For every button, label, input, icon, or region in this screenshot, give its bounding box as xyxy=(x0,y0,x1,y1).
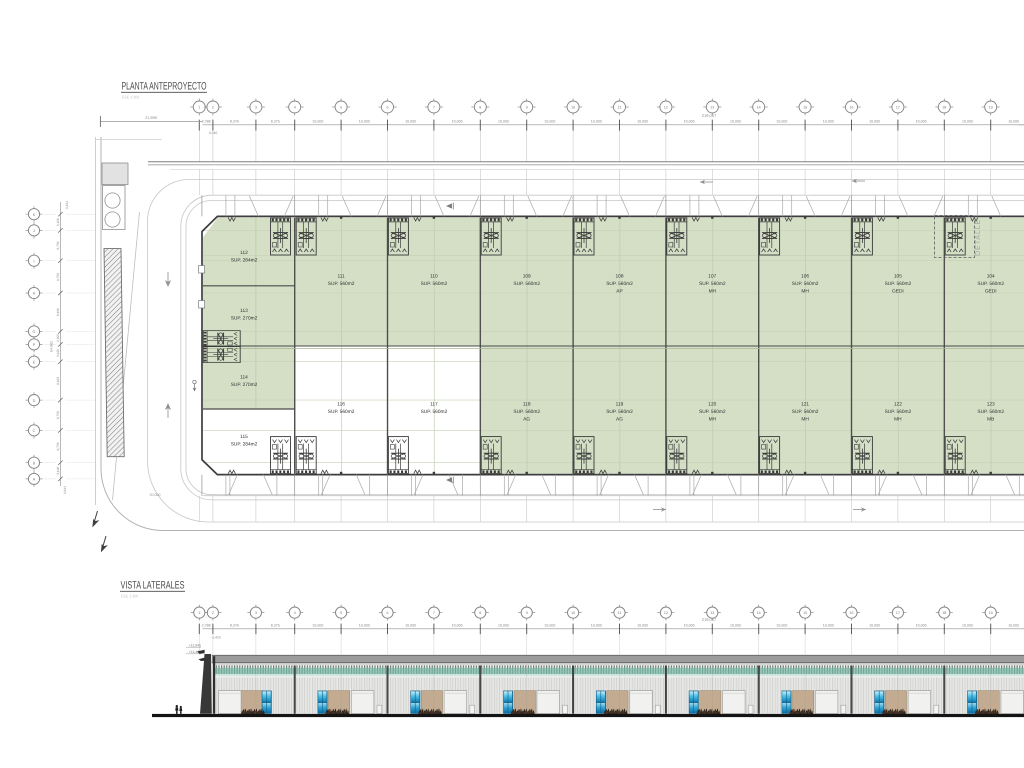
svg-text:219,007: 219,007 xyxy=(702,113,717,118)
svg-text:6: 6 xyxy=(387,611,389,615)
svg-text:10,000: 10,000 xyxy=(776,120,787,124)
svg-text:10,000: 10,000 xyxy=(730,120,741,124)
svg-text:10,000: 10,000 xyxy=(823,120,834,124)
svg-text:10: 10 xyxy=(571,611,575,615)
svg-text:I: I xyxy=(33,259,34,263)
svg-text:6,756: 6,756 xyxy=(56,411,60,419)
svg-text:1: 1 xyxy=(198,611,200,615)
svg-text:10,000: 10,000 xyxy=(544,624,555,628)
svg-text:8: 8 xyxy=(479,611,481,615)
svg-text:10,000: 10,000 xyxy=(1008,624,1019,628)
svg-text:0,624: 0,624 xyxy=(65,201,69,209)
svg-text:113: 113 xyxy=(240,308,248,314)
svg-text:B: B xyxy=(33,461,36,465)
svg-text:105: 105 xyxy=(894,274,902,280)
svg-text:10,000: 10,000 xyxy=(498,624,509,628)
svg-text:119: 119 xyxy=(616,402,624,408)
svg-text:120: 120 xyxy=(708,402,716,408)
svg-text:13: 13 xyxy=(710,611,714,615)
svg-text:SUP. 560m2: SUP. 560m2 xyxy=(699,409,726,415)
svg-text:121: 121 xyxy=(801,402,809,408)
svg-text:PLANTA ANTEPROYECTO: PLANTA ANTEPROYECTO xyxy=(122,81,207,93)
svg-text:54,981: 54,981 xyxy=(50,341,54,352)
svg-text:3: 3 xyxy=(255,611,257,615)
svg-text:6,756: 6,756 xyxy=(56,442,60,450)
svg-text:112: 112 xyxy=(240,250,248,256)
svg-text:MH: MH xyxy=(709,288,717,294)
svg-text:7: 7 xyxy=(433,106,435,110)
svg-text:12: 12 xyxy=(664,106,668,110)
svg-text:C: C xyxy=(33,429,36,433)
svg-text:11: 11 xyxy=(618,611,622,615)
svg-text:10,000: 10,000 xyxy=(1008,120,1019,124)
svg-text:10,000: 10,000 xyxy=(591,120,602,124)
svg-text:10,000: 10,000 xyxy=(405,624,416,628)
svg-text:SUP. 560m2: SUP. 560m2 xyxy=(977,409,1004,415)
svg-text:10,000: 10,000 xyxy=(730,624,741,628)
svg-text:8,376: 8,376 xyxy=(230,120,239,124)
svg-text:219,007: 219,007 xyxy=(702,617,717,622)
svg-text:10,000: 10,000 xyxy=(591,624,602,628)
svg-text:MH: MH xyxy=(801,416,809,422)
svg-text:SUP. 284m2: SUP. 284m2 xyxy=(231,442,258,448)
svg-text:8,375: 8,375 xyxy=(271,120,280,124)
svg-text:116: 116 xyxy=(337,402,345,408)
svg-text:10,000: 10,000 xyxy=(405,120,416,124)
svg-text:14: 14 xyxy=(757,106,761,110)
svg-text:A: A xyxy=(33,478,36,482)
svg-text:AG: AG xyxy=(616,416,623,422)
svg-text:MB: MB xyxy=(987,416,994,422)
svg-text:15: 15 xyxy=(803,106,807,110)
svg-text:SUP. 560m2: SUP. 560m2 xyxy=(792,409,819,415)
svg-text:10,000: 10,000 xyxy=(637,120,648,124)
svg-text:MH: MH xyxy=(894,416,902,422)
svg-text:2: 2 xyxy=(212,106,214,110)
svg-text:10,000: 10,000 xyxy=(916,120,927,124)
svg-text:10,000: 10,000 xyxy=(312,624,323,628)
svg-text:10,000: 10,000 xyxy=(869,624,880,628)
svg-text:0,614: 0,614 xyxy=(63,486,67,494)
svg-text:5: 5 xyxy=(340,611,342,615)
svg-text:GEDI: GEDI xyxy=(985,288,997,294)
svg-text:10: 10 xyxy=(571,106,575,110)
svg-text:17: 17 xyxy=(896,611,900,615)
svg-text:8,106: 8,106 xyxy=(56,308,60,316)
svg-text:SUP. 560m2: SUP. 560m2 xyxy=(328,281,355,287)
svg-text:7: 7 xyxy=(433,611,435,615)
svg-text:21,890: 21,890 xyxy=(145,116,157,120)
svg-text:K: K xyxy=(33,213,36,217)
svg-text:18: 18 xyxy=(942,611,946,615)
svg-text:10,000: 10,000 xyxy=(916,624,927,628)
svg-text:SUP. 560m2: SUP. 560m2 xyxy=(513,281,540,287)
svg-text:10,000: 10,000 xyxy=(684,624,695,628)
svg-text:E: E xyxy=(33,360,36,364)
svg-text:109: 109 xyxy=(523,274,531,280)
svg-text:DETALLE: DETALLE xyxy=(973,219,982,256)
svg-text:10,000: 10,000 xyxy=(637,624,648,628)
svg-text:MH: MH xyxy=(709,416,717,422)
svg-text:5: 5 xyxy=(340,106,342,110)
svg-text:19: 19 xyxy=(989,611,993,615)
svg-text:2,788: 2,788 xyxy=(202,624,211,628)
svg-text:2: 2 xyxy=(212,611,214,615)
svg-text:SUP. 560m2: SUP. 560m2 xyxy=(421,409,448,415)
svg-text:19: 19 xyxy=(989,106,993,110)
svg-text:SUP. 284m2: SUP. 284m2 xyxy=(231,258,258,264)
svg-text:10,000: 10,000 xyxy=(452,624,463,628)
svg-text:3,460: 3,460 xyxy=(56,349,60,357)
svg-text:8,376: 8,376 xyxy=(230,624,239,628)
svg-text:118: 118 xyxy=(523,402,531,408)
svg-text:16: 16 xyxy=(850,611,854,615)
svg-text:107: 107 xyxy=(708,274,716,280)
svg-text:10,000: 10,000 xyxy=(452,120,463,124)
svg-text:SUP. 560m2: SUP. 560m2 xyxy=(792,281,819,287)
svg-text:16: 16 xyxy=(850,106,854,110)
svg-text:ESC 1:300: ESC 1:300 xyxy=(122,95,140,100)
svg-text:10,000: 10,000 xyxy=(498,120,509,124)
svg-text:4: 4 xyxy=(294,611,296,615)
svg-text:SUP. 560m2: SUP. 560m2 xyxy=(421,281,448,287)
svg-text:6,756: 6,756 xyxy=(56,241,60,249)
svg-text:115: 115 xyxy=(240,434,248,440)
svg-text:SUP. 560m2: SUP. 560m2 xyxy=(606,281,633,287)
svg-text:AG: AG xyxy=(523,416,530,422)
svg-text:10,000: 10,000 xyxy=(359,624,370,628)
svg-text:10,000: 10,000 xyxy=(869,120,880,124)
svg-text:SUP. 270m2: SUP. 270m2 xyxy=(231,382,258,388)
svg-text:GEDI: GEDI xyxy=(892,288,904,294)
svg-text:11: 11 xyxy=(618,106,622,110)
svg-text:111: 111 xyxy=(337,274,345,280)
svg-text:3,196: 3,196 xyxy=(56,218,60,226)
svg-text:SUP. 560m2: SUP. 560m2 xyxy=(885,409,912,415)
svg-text:10,000: 10,000 xyxy=(962,624,973,628)
svg-text:114: 114 xyxy=(240,374,248,380)
svg-text:117: 117 xyxy=(430,402,438,408)
svg-text:4: 4 xyxy=(294,106,296,110)
svg-text:10,000: 10,000 xyxy=(312,120,323,124)
svg-text:2,788: 2,788 xyxy=(202,120,211,124)
svg-text:SUP. 560m2: SUP. 560m2 xyxy=(328,409,355,415)
svg-text:10,000: 10,000 xyxy=(544,120,555,124)
svg-text:9: 9 xyxy=(526,106,528,110)
svg-text:12: 12 xyxy=(664,611,668,615)
svg-text:3: 3 xyxy=(255,106,257,110)
svg-text:VISTA LATERALES: VISTA LATERALES xyxy=(121,580,185,592)
svg-text:14: 14 xyxy=(757,611,761,615)
svg-text:10,000: 10,000 xyxy=(684,120,695,124)
svg-text:SUP. 560m2: SUP. 560m2 xyxy=(699,281,726,287)
svg-text:6,756: 6,756 xyxy=(56,273,60,281)
svg-text:+12,845: +12,845 xyxy=(189,643,201,647)
svg-text:H: H xyxy=(33,292,36,296)
svg-text:9: 9 xyxy=(526,611,528,615)
svg-text:1: 1 xyxy=(198,106,200,110)
svg-text:8,106: 8,106 xyxy=(56,377,60,385)
svg-text:G: G xyxy=(33,330,36,334)
svg-text:SUP. 560m2: SUP. 560m2 xyxy=(977,281,1004,287)
svg-text:SUP. 270m2: SUP. 270m2 xyxy=(231,315,258,321)
svg-text:10,000: 10,000 xyxy=(359,120,370,124)
svg-text:MH: MH xyxy=(801,288,809,294)
svg-text:104: 104 xyxy=(987,274,995,280)
svg-text:SUP. 560m2: SUP. 560m2 xyxy=(513,409,540,415)
svg-text:SUP. 560m2: SUP. 560m2 xyxy=(606,409,633,415)
svg-text:106: 106 xyxy=(801,274,809,280)
svg-text:10,000: 10,000 xyxy=(776,624,787,628)
svg-text:17: 17 xyxy=(896,106,900,110)
svg-text:6: 6 xyxy=(387,106,389,110)
svg-text:AP: AP xyxy=(616,288,622,294)
svg-text:8,375: 8,375 xyxy=(271,624,280,628)
svg-text:20,000: 20,000 xyxy=(150,493,161,497)
svg-text:110: 110 xyxy=(430,274,438,280)
svg-text:8: 8 xyxy=(479,106,481,110)
svg-text:123: 123 xyxy=(987,402,995,408)
svg-text:D: D xyxy=(33,399,36,403)
svg-text:ESC 1:300: ESC 1:300 xyxy=(121,594,139,599)
svg-text:-6,425: -6,425 xyxy=(211,636,221,640)
svg-text:108: 108 xyxy=(615,274,623,280)
svg-text:2,695: 2,695 xyxy=(56,334,60,342)
svg-text:3,196: 3,196 xyxy=(56,467,60,475)
svg-text:15: 15 xyxy=(803,611,807,615)
svg-text:SUP. 560m2: SUP. 560m2 xyxy=(885,281,912,287)
svg-text:10,000: 10,000 xyxy=(962,120,973,124)
svg-text:13: 13 xyxy=(710,106,714,110)
svg-text:10,000: 10,000 xyxy=(823,624,834,628)
svg-text:18: 18 xyxy=(942,106,946,110)
svg-text:J: J xyxy=(33,229,35,233)
svg-text:122: 122 xyxy=(894,402,902,408)
